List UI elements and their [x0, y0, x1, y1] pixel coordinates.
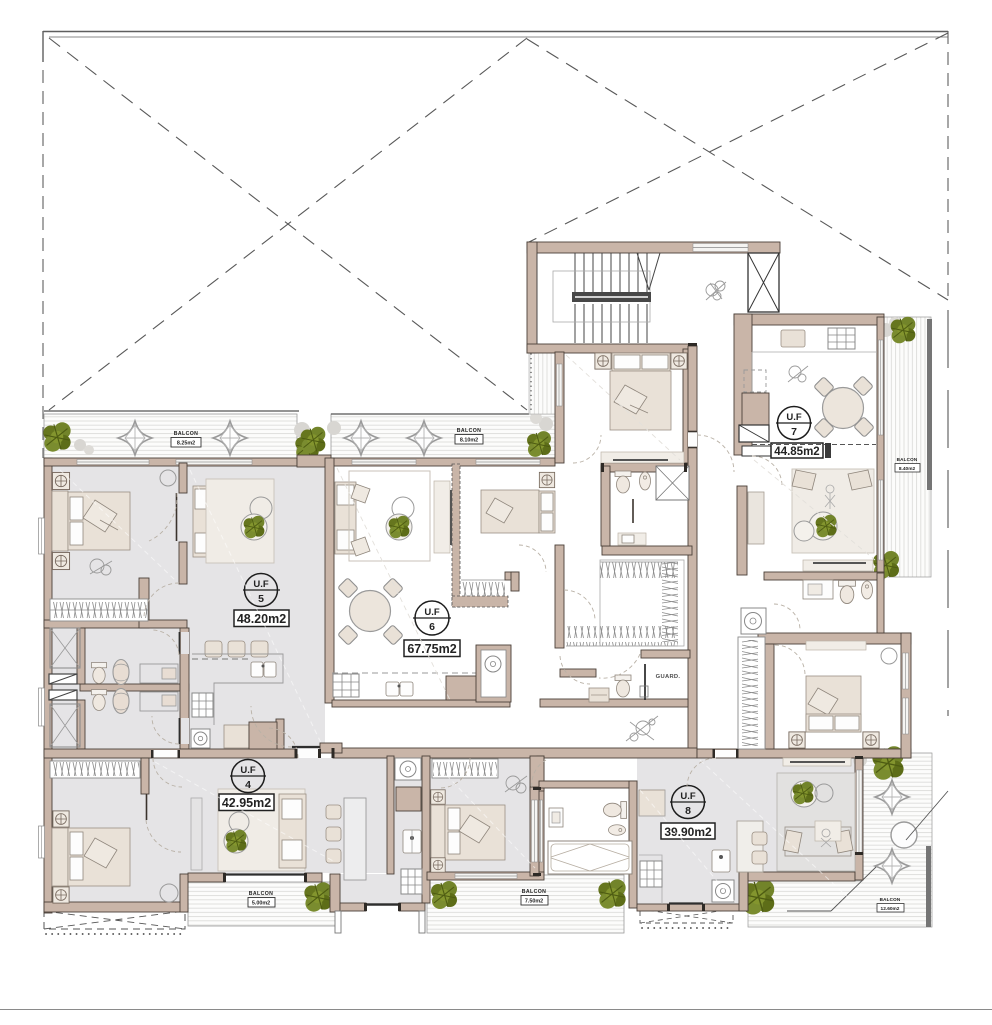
- svg-text:U.F: U.F: [680, 791, 696, 802]
- svg-text:BALCON: BALCON: [174, 431, 199, 437]
- svg-text:5: 5: [258, 593, 264, 605]
- svg-text:BALCON: BALCON: [880, 897, 901, 902]
- svg-text:67.75m2: 67.75m2: [407, 642, 456, 656]
- svg-text:BALCON: BALCON: [249, 891, 274, 897]
- svg-text:44.85m2: 44.85m2: [774, 446, 819, 458]
- svg-text:BALCON: BALCON: [897, 457, 918, 462]
- svg-text:U.F: U.F: [424, 607, 440, 618]
- svg-text:GUARD.: GUARD.: [656, 674, 681, 680]
- svg-text:6: 6: [429, 621, 435, 633]
- svg-text:8: 8: [685, 805, 691, 817]
- svg-text:12.60m2: 12.60m2: [881, 906, 900, 912]
- svg-text:BALCON: BALCON: [457, 428, 482, 434]
- svg-text:7.50m2: 7.50m2: [525, 899, 543, 905]
- svg-text:8.40m2: 8.40m2: [899, 466, 916, 472]
- svg-text:BALCON: BALCON: [522, 889, 547, 895]
- svg-text:8.25m2: 8.25m2: [177, 441, 195, 447]
- svg-text:U.F: U.F: [240, 765, 256, 776]
- svg-text:5.00m2: 5.00m2: [252, 901, 270, 907]
- svg-text:8.10m2: 8.10m2: [460, 438, 478, 444]
- svg-text:7: 7: [791, 426, 797, 438]
- svg-text:4: 4: [245, 779, 251, 791]
- svg-text:U.F: U.F: [786, 412, 802, 423]
- svg-text:U.F: U.F: [253, 579, 269, 590]
